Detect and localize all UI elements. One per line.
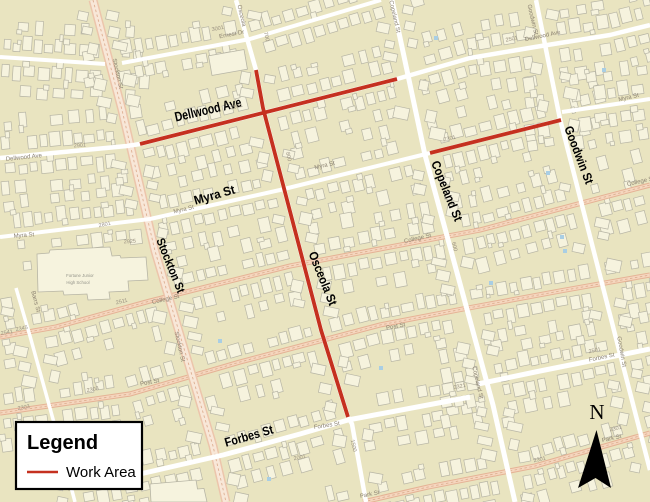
svg-text:Work Area: Work Area [66, 464, 136, 481]
svg-text:Fortune Junior: Fortune Junior [66, 273, 94, 278]
svg-text:Legend: Legend [27, 432, 98, 454]
svg-text:2901: 2901 [74, 143, 87, 150]
svg-text:2925: 2925 [124, 239, 137, 246]
svg-text:High School: High School [66, 280, 89, 285]
svg-text:N: N [589, 400, 604, 424]
